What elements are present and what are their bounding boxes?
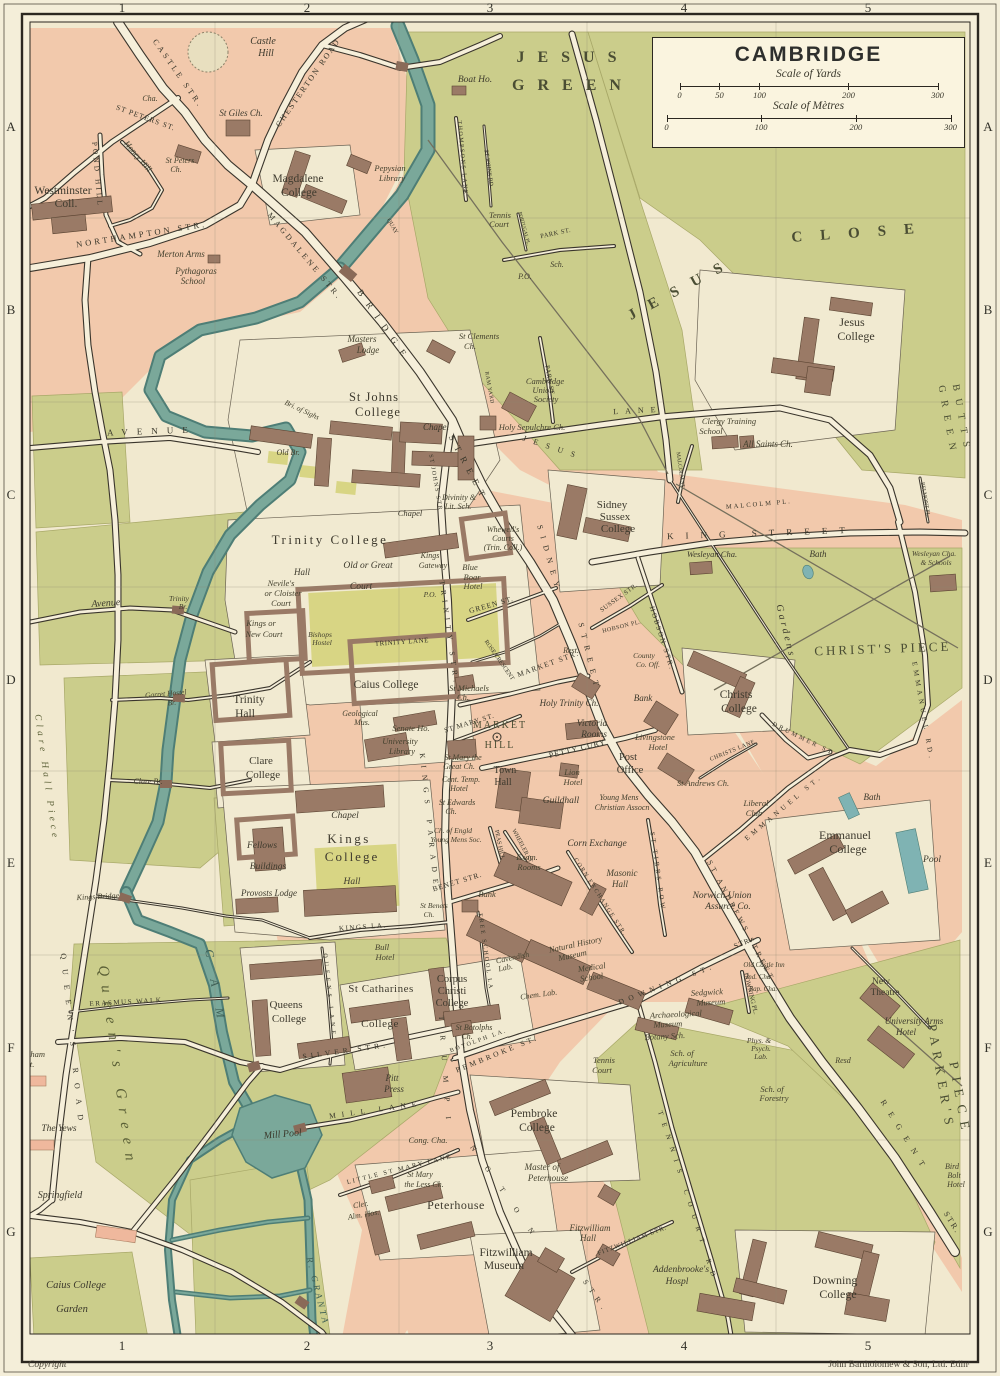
map-label: College [355,405,401,419]
grid-row-label-right: F [984,1040,991,1055]
map-label: Lion [563,767,580,777]
scale-bar-metres: 0100200300 [667,114,951,131]
map-label: Hill [257,48,274,59]
building [314,438,331,487]
building [226,120,250,136]
map-label: Victoria [577,719,608,729]
map-label: Bird [945,1162,960,1171]
map-label: Post [619,752,637,763]
map-label: College [281,187,317,199]
map-label: & Schools [920,558,951,567]
grid-row-label-left: E [7,855,15,870]
grid-row-label-right: E [984,855,992,870]
map-label: Trinity College [272,532,389,547]
scale-tick-label: 100 [753,90,766,100]
map-label: St Catharines [348,983,413,995]
map-label: Fellows [246,841,277,851]
map-label: Bull [375,942,390,952]
map-label: Young Mens [599,793,638,802]
map-label: JESUS [516,49,629,66]
map-label: Hospl [665,1277,689,1287]
map-label: Museum [695,996,725,1008]
map-label: GREEN [512,77,634,94]
map-label: County [633,651,655,660]
map-label: Hall [579,1233,597,1243]
map-label: Corpus [437,974,467,985]
grid-col-label-bottom: 3 [487,1338,494,1353]
scale-tick [761,115,762,122]
building [480,416,496,430]
map-label: Jesus [839,315,865,329]
map-label: Divinity & [441,493,477,502]
map-label: Old or Great [343,561,393,571]
map-label: Pitt [385,1073,399,1083]
title-cartouche: CAMBRIDGE Scale of Yards 050100200300 Sc… [652,37,965,148]
map-label: St Clements [459,331,500,341]
map-label: Christian Assocn [595,803,650,812]
map-label: Press [383,1084,404,1094]
map-label: St Andrews Ch. [677,778,729,788]
map-label: Avenue [90,597,121,610]
map-label: College [272,1013,306,1025]
map-content: JESUSGREENJESUSCLOSECHRIST'S PIECEPARKER… [10,18,974,1358]
map-label: Pool [922,855,941,865]
map-label: Pepysian [373,163,405,173]
map-label: Tennis [593,1055,616,1065]
map-label: Club [746,808,763,818]
grid-row-label-left: C [7,487,16,502]
map-label: College [519,1122,555,1134]
map-label: Master of [524,1162,561,1172]
map-label: P.O. [517,272,532,281]
map-label: Magdalene [272,173,323,185]
map-label: Geological [342,709,378,718]
map-label: Ch. [170,165,181,174]
court-lawn [335,481,356,495]
map-label: Chapel [398,508,423,518]
map-label: Lodge [356,345,380,355]
map-label: Court [271,598,291,608]
map-label: Clare Br. [133,777,162,786]
map-label: College [721,703,757,715]
map-label: Westminster [34,185,91,197]
map-label: Downing [813,1273,858,1287]
map-label: Mus. [353,718,370,727]
map-label: Ch. [457,692,469,702]
map-label: Library [388,746,415,756]
map-label: Old Br. [276,448,299,457]
scale-tick-label: 0 [677,90,681,100]
map-label: The Yews [41,1124,77,1134]
map-label: Queens [270,999,303,1011]
map-label: Garden [56,1304,88,1315]
map-label: College [829,842,866,856]
map-label: College [601,523,635,535]
scale-tick [759,83,760,90]
scale-bar-yards: 050100200300 [680,82,938,99]
map-label: Clergy Training [702,416,756,426]
scale-tick-label: 200 [850,122,863,132]
grid-row-label-right: D [983,672,992,687]
map-label: Ch. [464,341,476,351]
map-label: Whewell's [487,525,519,534]
map-label: Masters [347,334,377,344]
map-footer: Copyright John Bartholomew & Son, Ltd. E… [0,1358,1000,1376]
publisher-credit: John Bartholomew & Son, Ltd. Edinʳ [828,1360,970,1370]
map-label: Courts [492,534,514,543]
map-label: St Edwards [439,798,475,807]
map-label: Hall [611,879,629,889]
map-label: College [246,769,280,781]
map-label: Hall [293,567,311,577]
map-label: Wesleyan Cha. [912,549,956,558]
map-label: Coll. [55,198,78,210]
map-label: Livingstone [634,732,675,742]
map-label: Emmanuel [819,828,872,842]
map-label: Hotel [563,777,584,787]
map-label: Hall [235,708,255,720]
building [51,214,86,233]
map-label: Caius College [46,1280,106,1291]
map-label: Town [494,765,517,776]
grid-row-label-left: B [7,302,16,317]
map-label: College [837,329,874,343]
scale-tick [938,83,939,90]
map-label: Addenbrooke's [652,1265,709,1275]
map-label: Hotel [449,784,469,793]
map-label: Ch. [445,807,456,816]
building [462,900,478,912]
map-label: the Less Ch. [404,1180,443,1189]
map-label: Ch. [424,910,435,919]
map-label: St Peters [166,156,195,165]
map-label: Provosts Lodge [240,888,297,898]
map-label: Cha. [142,94,157,103]
map-label: Buildings [250,862,287,872]
map-label: Chapel [331,811,359,821]
map-label: Cong. Cha. [409,1135,448,1145]
castle-hill-mound [188,32,228,72]
map-label: College [325,849,379,864]
map-label: New Court [244,629,283,639]
map-label: Merton Arms [156,249,205,259]
park-area [30,1252,148,1338]
building [712,435,739,449]
grid-row-label-left: A [6,119,16,134]
map-label: Lit. Sch. [444,502,471,511]
map-label: Sch. [550,260,564,269]
grid-row-label-right: G [983,1224,992,1239]
map-label: Cent. Temp. [442,775,480,784]
map-label: Bank [634,693,653,703]
building [208,255,220,263]
map-label: Ch. of Engld [434,826,472,835]
map-label: Theatre [870,988,899,998]
map-label: Botany Sch. [644,1030,685,1042]
map-label: University Arms [885,1016,944,1026]
grid-row-label-left: G [6,1224,15,1239]
map-label: Resd [834,1056,852,1065]
map-label: Blue [462,562,478,572]
map-label: Christi [438,986,467,997]
grid-row-label-right: C [984,487,993,502]
scale-tick [719,83,720,90]
map-label: Hall [494,777,511,788]
grid-row-label-right: A [983,119,993,134]
cambridge-map-canvas: JESUSGREENJESUSCLOSECHRIST'S PIECEPARKER… [0,0,1000,1376]
map-label: College [436,998,469,1009]
scale-tick [667,115,668,122]
map-label: Sch. of [670,1048,695,1058]
map-label: Hostel [311,638,332,647]
map-label: St Botolphs [456,1023,493,1032]
map-label: Boat Ho. [458,75,492,85]
map-label: Senate Ho. [392,723,429,733]
map-label: Br. [179,602,188,611]
map-label: Kings [420,551,440,560]
map-label: Hall [343,877,361,887]
map-label: New [872,977,890,987]
scale-tick-label: 200 [842,90,855,100]
map-label: Pythagoras [174,266,217,276]
grid-col-label-top: 5 [865,0,872,15]
map-label: Nevile's [267,578,296,588]
building [690,561,713,575]
map-label: Corn Exchange [567,839,626,849]
map-label: College [819,1287,856,1301]
map-label: Agriculture [668,1058,708,1068]
map-label: Liberal [742,798,769,808]
building [929,574,956,592]
map-label: Holy Sepulchre Ch. [498,422,566,432]
map-label: St Mary the [444,753,482,762]
map-label: Court [350,582,373,592]
map-label: Bolt [947,1171,961,1180]
map-label: Library [378,173,405,183]
map-label: Museum [652,1018,682,1030]
map-label: St Johns [349,390,399,404]
grid-col-label-top: 2 [304,0,311,15]
map-label: (Trin. Coll.) [484,543,523,552]
map-label: Gateway [419,561,448,570]
map-label: Bath [864,792,881,802]
map-label: College [361,1018,399,1030]
map-label: Christs [720,689,753,701]
grid-row-label-left: D [6,672,15,687]
scale-tick [856,115,857,122]
map-label: P.O. [423,590,437,599]
map-label: Court [489,219,509,229]
map-page: JESUSGREENJESUSCLOSECHRIST'S PIECEPARKER… [0,0,1000,1376]
market-cross-icon [496,736,498,738]
map-label: Sussex [600,511,631,523]
map-label: Trinity [233,694,265,706]
map-label: Masonic [606,868,638,878]
map-label: Castle [250,36,276,47]
map-label: University [382,736,418,746]
map-label: School [699,426,723,436]
map-label: Guildhall [543,796,580,806]
court-lawn [308,583,500,667]
map-label: St Benets [420,901,448,910]
map-label: Peterhouse [527,1173,568,1183]
map-label: Hotel [895,1027,916,1037]
map-label: Cott. [18,1059,35,1069]
grid-col-label-bottom: 1 [119,1338,126,1353]
map-label: Fitzwilliam [479,1247,532,1259]
map-label: Co. Off. [636,660,660,669]
grid-col-label-top: 4 [681,0,688,15]
map-label: Clare [249,755,273,767]
scale-tick [951,115,952,122]
map-label: Lab. [753,1052,768,1061]
map-label: Hotel [463,581,484,591]
map-label: Hotel [648,742,669,752]
grid-col-label-bottom: 5 [865,1338,872,1353]
map-label: Hotel [946,1180,966,1189]
map-label: Sidney [597,499,628,511]
map-label: Office [617,765,644,776]
map-label: Holy Trinity Ch. [539,698,599,708]
building [452,86,466,95]
map-label: Great Ch. [443,762,475,771]
map-label: Caius College [354,679,419,691]
map-label: Peterhouse [427,1198,485,1212]
map-label: Springfield [38,1190,83,1201]
copyright-note: Copyright [28,1360,67,1370]
map-label: Wesleyan Cha. [687,549,737,559]
map-label: Court [592,1065,612,1075]
map-label: Forestry [759,1093,789,1103]
map-label: or Cloister [264,588,302,598]
map-label: Fitzwilliam [568,1223,611,1233]
map-label: Newnham [10,1049,45,1059]
scale-yards-label: Scale of Yards [653,68,964,80]
map-label: Young Mens Soc. [430,835,481,844]
grid-col-label-top: 1 [119,0,126,15]
map-title: CAMBRIDGE [653,43,964,67]
map-label: Chapel [423,422,449,432]
scale-tick-label: 300 [944,122,957,132]
grid-row-label-right: B [984,302,993,317]
map-label: Pembroke [511,1108,558,1120]
map-label: Bath [810,549,827,559]
scale-tick-label: 100 [755,122,768,132]
map-label: All Saints Ch. [742,439,793,449]
building [804,366,833,395]
map-label: School [181,276,206,286]
building [303,886,396,917]
building [24,1076,46,1086]
scale-metres-label: Scale of Mètres [653,100,964,112]
map-label: Br. [167,698,176,708]
grid-col-label-bottom: 2 [304,1338,311,1353]
map-label: Bank [478,889,496,899]
scale-tick-label: 0 [664,122,668,132]
map-label: Hotel [375,952,396,962]
map-label: St Giles Ch. [219,108,262,118]
map-label: Kings or [245,618,276,628]
grid-col-label-bottom: 4 [681,1338,688,1353]
scale-tick [680,83,681,90]
scale-tick [848,83,849,90]
map-label: Kings [327,831,371,846]
grid-col-label-top: 3 [487,0,494,15]
map-label: HILL [485,740,516,751]
grid-row-label-left: F [7,1040,14,1055]
map-label: St Mary [407,1170,433,1179]
scale-tick-label: 50 [715,90,724,100]
building [236,897,279,914]
map-label: Museum [484,1260,524,1272]
scale-tick-label: 300 [931,90,944,100]
building [28,1140,54,1150]
